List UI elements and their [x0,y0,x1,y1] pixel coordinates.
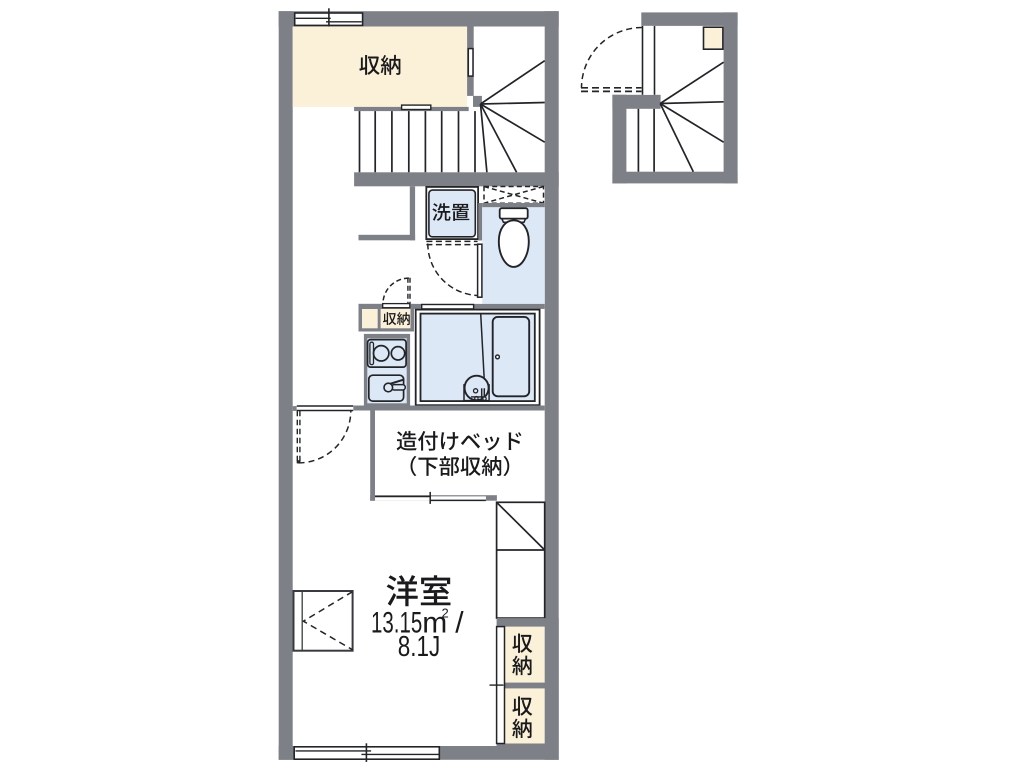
svg-text:8.1J: 8.1J [398,631,441,663]
svg-text:/: / [455,607,464,640]
svg-text:2: 2 [442,606,449,621]
